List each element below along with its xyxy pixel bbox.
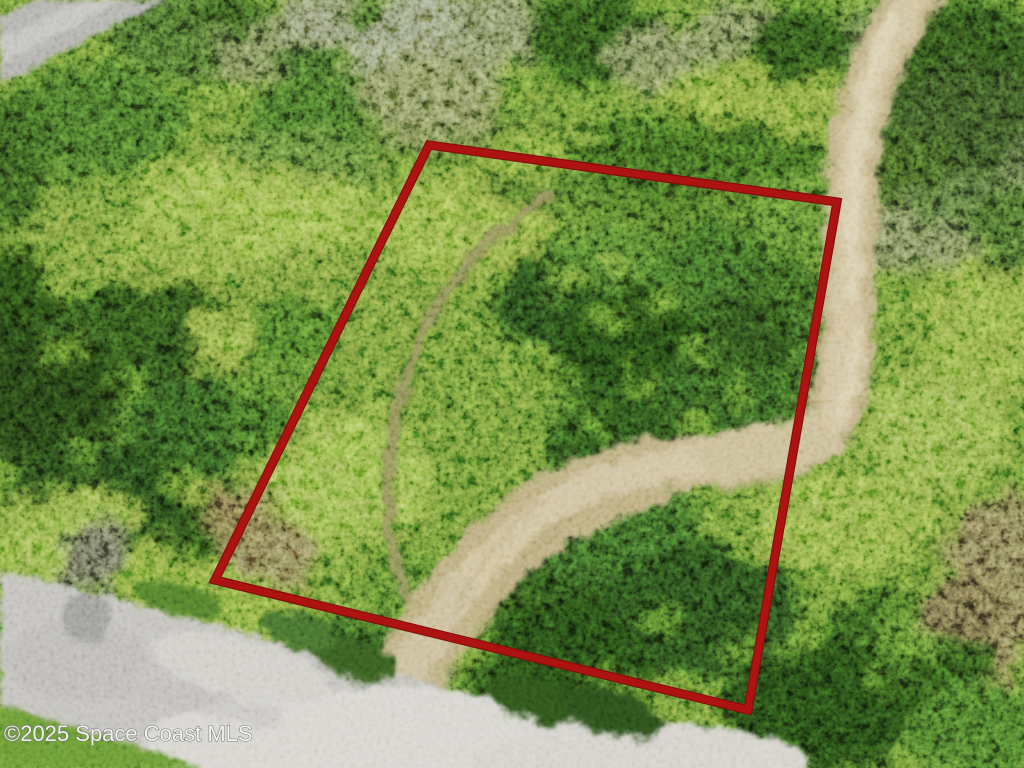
svg-text:©2025 Space Coast MLS: ©2025 Space Coast MLS: [4, 721, 253, 746]
